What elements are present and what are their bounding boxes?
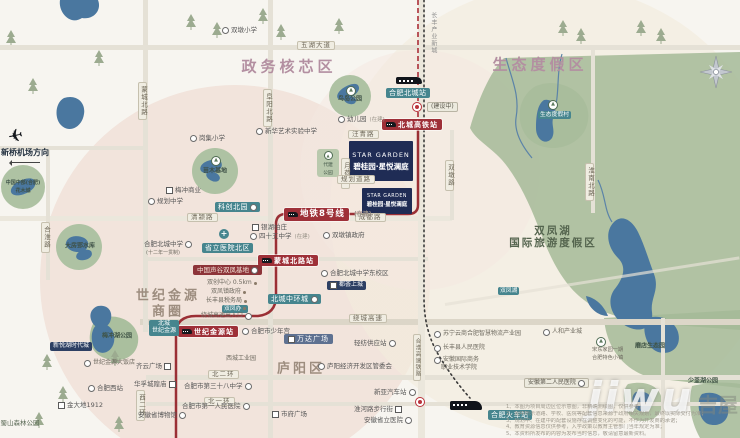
disclaimer-line-4: 4、教育资源信息仅供参考，入学政策以教育主管部门当年规定为准； <box>506 424 738 431</box>
disclaimer-line-2: 2、图中所示道路、学校、医院等配套信息来源于政府相关规划，最终以实际交付为准； <box>506 411 738 418</box>
map-canvas: STAR GARDEN 碧桂园·星悦澜庭 STAR GARDEN 碧桂园·星悦澜… <box>0 0 740 438</box>
project-south-name-cn: 碧桂园·星悦澜庭 <box>367 200 408 208</box>
circleA-label-line1-text: 中国中部(合肥) <box>6 181 41 187</box>
airport-direction: 新桥机场方向 <box>1 148 49 157</box>
poi-shuangfeng-gov-text: 双凤镇政府 <box>211 289 241 296</box>
circleA-label-line2: 花木城 <box>15 189 30 195</box>
poi-45-middle-text: 四十五中学 <box>259 233 292 240</box>
poi-xinhua-art-school-text: 新华艺术实验中学 <box>265 128 317 135</box>
project-name-en: STAR GARDEN <box>352 151 410 159</box>
metro-roundel-south <box>415 397 425 407</box>
station-shijijinyuan: 世纪金源站 <box>178 326 238 337</box>
poi-changfeng-tax-text: 长丰县税务局 <box>206 298 242 305</box>
poi-planned-school: 规划中学 <box>148 198 183 205</box>
region-shengtai: 生态度假区 <box>492 56 587 73</box>
rail-dotted-hsr <box>424 0 470 398</box>
poi-huaihe-rd-street-text: 淮河路步行街 <box>354 406 393 413</box>
road-huainan-north-text: 淮南北路 <box>586 167 593 197</box>
c-icon <box>250 204 257 211</box>
road-hehuai: 合淮路 <box>41 222 50 253</box>
poi-xicheng-industrial-text: 西城工业园 <box>226 356 256 363</box>
poi-beicheng-sjjy-line2: 世纪金源 <box>152 328 176 335</box>
poi-anhui-intl-biz-line2: 职业技术学院 <box>441 365 477 372</box>
s-icon <box>288 336 295 343</box>
poi-anhui-provincial-hospital-text: 安徽省立医院 <box>364 417 403 424</box>
region-shuangfenghu-line1-text: 双凤湖 <box>534 225 572 237</box>
poi-huaihe-rd-street: 淮河路步行街 <box>354 406 402 413</box>
road-north-2nd-ring: 北二环 <box>208 370 239 379</box>
s-icon <box>164 363 171 370</box>
poi-xicheng-industrial: 西城工业园 <box>226 356 256 363</box>
poi-beicheng-zhonghuan: 北城中环城 <box>268 294 321 304</box>
d-icon <box>243 291 246 294</box>
poi-luyang-edz-text: 庐阳经济开发区管委会 <box>327 363 392 370</box>
poi-songdong-line2-text: 合肥特色小镇 <box>592 356 623 362</box>
poi-beicheng-middle-note: (十二年一贯制) <box>146 251 180 257</box>
banner-china-sound-valley: 中国声谷双凤基地 <box>193 265 262 275</box>
poi-beicheng-middle-text: 合肥北城中学 <box>144 241 183 248</box>
status-under-construction-text: (建设中) <box>431 104 454 111</box>
station-beicheng-hsr: 北城高铁站 <box>382 119 442 130</box>
c-icon <box>243 403 250 410</box>
c-icon <box>389 340 396 347</box>
road-planned: 规划道路 <box>337 175 375 184</box>
road-huainan-north: 淮南北路 <box>585 163 594 201</box>
poi-gangji-primary-text: 岗集小学 <box>199 135 225 142</box>
s-icon <box>58 402 65 409</box>
poi-songdong-line1-text: 宋东家园一期 <box>592 348 623 354</box>
label-shuangfenghu-lake-text: 双凤湖 <box>500 288 517 295</box>
poi-yinhu-bozhuang: 银湖柏庄 <box>252 224 287 231</box>
poi-gangji-primary: 岗集小学 <box>190 135 225 142</box>
c-icon <box>242 328 249 335</box>
poi-shifu-plaza: 市府广场 <box>272 411 307 418</box>
disclaimer-line-3: 3、规划中、在建中的配套设施存在调整变化的可能，不作为开发商的承诺； <box>506 418 738 425</box>
c-icon <box>88 385 95 392</box>
poi-youth-palace: 合肥市少年宫 <box>242 328 290 335</box>
c-icon <box>185 241 192 248</box>
road-shuangdun: 双墩路 <box>445 160 454 191</box>
poi-wanda-plaza: 万达广场 <box>284 334 333 344</box>
tr-icon <box>262 258 272 263</box>
rail-hehuai-hsr-text: 合淮高速铁路 <box>414 338 420 377</box>
airport-direction-arrow <box>10 162 40 163</box>
poi-hefei-west-station-text: 合肥西站 <box>97 385 123 392</box>
poi-first-peoples-hospital: 合肥市第一人民医院 <box>182 403 250 410</box>
road-raocheng-expwy: 绕城高速 <box>349 314 387 323</box>
poi-hefei-west-station: 合肥西站 <box>88 385 123 392</box>
poi-anhui-provincial-hospital: 安徽省立医院 <box>364 417 412 424</box>
status-under-construction: (建设中) <box>427 102 458 112</box>
poi-first-peoples-hospital-text: 合肥市第一人民医院 <box>182 403 241 410</box>
metro-line8-banner: 地铁8号线 <box>284 208 349 221</box>
poi-kindergarten-status: (在建) <box>370 117 385 123</box>
tree-badge-circleD: ▲ <box>346 86 356 96</box>
poi-meichong-biz-text: 梅冲商业 <box>175 187 201 194</box>
poi-wanda-plaza-text: 万达广场 <box>297 335 329 343</box>
park-meichonghu-text: 梅冲湖公园 <box>102 334 132 341</box>
poi-jindadi-1912-text: 金大地1912 <box>67 402 103 409</box>
s-icon <box>395 406 402 413</box>
poi-changfeng-tax: 长丰县税务局 <box>206 298 247 305</box>
d-icon <box>244 300 247 303</box>
region-sjjy-line2: 商圈 <box>152 306 184 321</box>
poi-suning-logistics: 苏宁云商合肥智慧物流产业园 <box>434 331 521 338</box>
s-icon <box>252 224 259 231</box>
station-hefei-beicheng: 合肥北城站 <box>386 88 430 98</box>
poi-planned-school-text: 规划中学 <box>157 198 183 205</box>
poi-duhui-shangcheng-text: 都荟上城 <box>339 282 363 289</box>
c-icon <box>323 232 330 239</box>
park-square-daijian: ▲ 代建 公园 <box>317 149 339 177</box>
disclaimer-line-5: 5、本资料所发布的内容为发布当时信息，敬请留意最新资料。 <box>506 431 738 438</box>
project-name-cn: 碧桂园·星悦澜庭 <box>353 161 408 172</box>
c-icon <box>250 233 257 240</box>
road-mengcheng-north-text: 蒙城北路 <box>139 86 146 116</box>
poi-huafu-chenghuangmiao: 华孚城隍庙 <box>134 381 176 388</box>
region-zhengwu: 政务核芯区 <box>241 58 336 75</box>
c-icon <box>256 128 263 135</box>
poi-no38-middle-text: 合肥市第三十八中学 <box>184 383 243 390</box>
circleD-label: 鸟岛公园 <box>338 97 362 104</box>
station-beicheng-hsr-text: 北城高铁站 <box>398 121 438 129</box>
poi-anhui-museum: 安徽省博物馆 <box>138 412 186 419</box>
road-shuangdun-text: 双墩路 <box>446 164 453 187</box>
c-icon <box>251 267 258 274</box>
poi-kechuang-beiyuan: 科创北园 <box>215 202 260 212</box>
poi-anhui-museum-text: 安徽省博物馆 <box>138 412 177 419</box>
changfeng-newtown: 长丰产业新城 <box>429 12 436 54</box>
train-icon-beicheng <box>396 77 422 84</box>
airport-direction-text: 新桥机场方向 <box>1 148 49 157</box>
region-shuangfenghu-line2-text: 国际旅游度假区 <box>509 237 597 249</box>
poi-changfeng-hospital-text: 长丰县人民医院 <box>443 345 485 352</box>
c-icon <box>245 383 252 390</box>
disclaimer-line-1: 1、本图为项目周边区位示意图，非精确测绘图，仅供参考； <box>506 404 738 411</box>
poi-provincial-hospital-north: 省立医院北区 <box>202 243 253 253</box>
park-dashushan: 大蜀山森林公园 <box>0 420 40 427</box>
poi-shuangdun-primary-text: 双墩小学 <box>231 27 257 34</box>
c-icon <box>434 345 441 352</box>
metro-line8-banner-text: 地铁8号线 <box>300 210 345 220</box>
s-icon <box>169 381 176 388</box>
poi-renhe-industry: 人和产业城 <box>543 329 582 336</box>
poi-xinya-bus-station: 新亚汽车站 <box>374 389 416 396</box>
park-modian-eco-text: 磨店生态园 <box>635 344 665 351</box>
c-icon <box>190 135 197 142</box>
c-icon <box>318 363 325 370</box>
rail-hehuai-hsr: 合淮高速铁路 <box>413 334 421 381</box>
poi-kindergarten: 幼儿园(在建) <box>338 116 385 123</box>
poi-qiyun-plaza: 齐云广场 <box>136 363 171 370</box>
d-icon <box>243 307 246 310</box>
poi-xinhua-art-school: 新华艺术实验中学 <box>256 128 317 135</box>
road-mengcheng-north: 蒙城北路 <box>138 82 147 120</box>
poi-anhui-intl-biz-line1-text: 安徽国际商务 <box>443 357 479 364</box>
s-icon <box>272 411 279 418</box>
poi-anhui-2nd-hospital: 安徽第二人民医院 <box>524 378 589 388</box>
poi-qingfang-station: 轻纺供应站 <box>354 340 396 347</box>
park-modian-eco: 磨店生态园 <box>635 344 665 351</box>
region-shuangfenghu-line1: 双凤湖 <box>534 225 572 237</box>
road-wangqing: 汪青路 <box>348 130 379 139</box>
park-meichonghu: 梅冲湖公园 <box>102 334 132 341</box>
poi-beicheng-zhonghuan-text: 北城中环城 <box>271 295 309 303</box>
station-hefei-beicheng-text: 合肥北城站 <box>389 89 427 97</box>
label-shuangfenghu-lake: 双凤湖 <box>498 287 519 295</box>
tr-icon <box>288 212 298 217</box>
c-icon <box>148 198 155 205</box>
station-mengcheng-north-rd-text: 蒙城北路站 <box>274 257 314 265</box>
poi-anhui-intl-biz-line1: 安徽国际商务 <box>434 357 479 364</box>
compass-icon <box>698 54 734 90</box>
region-zhengwu-text: 政务核芯区 <box>241 58 336 75</box>
poi-expwy-exit: 绕城高速出入口 <box>201 313 252 320</box>
region-shuangfenghu-line2: 国际旅游度假区 <box>509 237 597 249</box>
c-icon <box>543 329 550 336</box>
poi-shuangdun-gov: 双墩镇政府 <box>323 232 365 239</box>
poi-suning-logistics-text: 苏宁云商合肥智慧物流产业园 <box>443 331 521 338</box>
poi-anhui-2nd-hospital-text: 安徽第二人民医院 <box>528 380 576 387</box>
poi-songdong-line1: 宋东家园一期 <box>592 348 623 354</box>
park-square-label-1: 代建 <box>323 161 333 168</box>
c-icon <box>434 331 441 338</box>
c-icon <box>409 389 416 396</box>
c-icon <box>434 357 441 364</box>
banner-china-sound-valley-text: 中国声谷双凤基地 <box>197 267 249 274</box>
park-square-label-2: 公园 <box>323 169 333 176</box>
poi-xinyuehu-times: 新悦湖时代城 <box>50 342 92 351</box>
poi-shuangchuang-center: 双创中心 0.5km <box>207 280 257 287</box>
poi-kechuang-beiyuan-text: 科创北园 <box>218 203 248 211</box>
metro-line8-status-text: (在建) <box>354 212 372 219</box>
poi-shuangdun-primary: 双墩小学 <box>222 27 257 34</box>
poi-no38-middle: 合肥市第三十八中学 <box>184 383 252 390</box>
poi-yinhu-bozhuang-text: 银湖柏庄 <box>261 224 287 231</box>
c-icon <box>245 313 252 320</box>
poi-shuangdun-gov-text: 双墩镇政府 <box>332 232 365 239</box>
label-eco-resort-village-text: 生态度假村 <box>540 112 569 119</box>
poi-beicheng-middle-east: 合肥北城中学东校区 <box>321 270 389 277</box>
poi-renhe-industry-text: 人和产业城 <box>552 329 582 336</box>
label-eco-resort-village: 生态度假村 <box>538 111 571 119</box>
region-shengtai-text: 生态度假区 <box>492 56 587 73</box>
poi-songdong-line2: 合肥特色小镇 <box>592 356 623 362</box>
poi-sjjy-hotel: 世纪金源大饭店 <box>84 360 135 367</box>
region-sjjy-line1-text: 世纪金源 <box>136 290 200 305</box>
tree-badge-resort: ▲ <box>548 100 558 110</box>
changfeng-newtown-text: 长丰产业新城 <box>429 12 436 54</box>
road-qingying: 清颍路 <box>187 213 218 222</box>
poi-beicheng-middle-note-text: (十二年一贯制) <box>146 251 180 257</box>
road-fuyang-north: 阜阳北路 <box>263 89 272 127</box>
poi-huafu-chenghuangmiao-text: 华孚城隍庙 <box>134 381 167 388</box>
circleC-label: 苗木基地 <box>203 169 227 176</box>
tr-icon <box>182 329 192 334</box>
region-sjjy-line2-text: 商圈 <box>152 306 184 321</box>
c-icon <box>84 360 91 367</box>
c-icon <box>405 417 412 424</box>
poi-beicheng-middle: 合肥北城中学 <box>144 241 192 248</box>
road-north-2nd-ring-text: 北二环 <box>212 371 235 378</box>
c-icon <box>222 27 229 34</box>
circleC-label-text: 苗木基地 <box>203 169 227 176</box>
poi-qingfang-station-text: 轻纺供应站 <box>354 340 387 347</box>
poi-45-middle: 四十五中学(在建) <box>250 233 310 240</box>
road-planned-text: 规划道路 <box>341 176 371 183</box>
poi-shuangchuang-center-text: 双创中心 0.5km <box>207 280 252 287</box>
tr-icon <box>386 122 396 127</box>
c-icon <box>321 270 328 277</box>
park-dashushan-text: 大蜀山森林公园 <box>0 420 40 427</box>
station-shijijinyuan-text: 世纪金源站 <box>194 328 234 336</box>
poi-luyang-edz: 庐阳经济开发区管委会 <box>318 363 392 370</box>
road-fuyang-north-text: 阜阳北路 <box>264 93 271 123</box>
circleA-label-line1: 中国中部(合肥) <box>6 181 41 187</box>
circleB-label: 大房郢水库 <box>65 244 95 251</box>
disclaimer-block: 1、本图为项目周边区位示意图，非精确测绘图，仅供参考； 2、图中所示道路、学校、… <box>506 404 738 438</box>
tree-badge-circleC: ▲ <box>211 156 221 166</box>
road-qingying-text: 清颍路 <box>191 214 214 221</box>
poi-anhui-intl-biz-line2-text: 职业技术学院 <box>441 365 477 372</box>
tree-badge-songdong: ▲ <box>596 337 606 347</box>
poi-beicheng-middle-east-text: 合肥北城中学东校区 <box>330 270 389 277</box>
road-hehuai-text: 合淮路 <box>42 226 49 249</box>
c-icon <box>311 296 318 303</box>
circleD-label-text: 鸟岛公园 <box>338 97 362 104</box>
poi-meichong-biz: 梅冲商业 <box>166 187 201 194</box>
metro-roundel-north <box>412 102 422 112</box>
poi-duhui-shangcheng: 都荟上城 <box>327 281 366 290</box>
road-wuhu-avenue: 五湖大道 <box>297 41 335 50</box>
poi-shifu-plaza-text: 市府广场 <box>281 411 307 418</box>
region-sjjy-line1: 世纪金源 <box>136 290 200 305</box>
poi-qiyun-plaza-text: 齐云广场 <box>136 363 162 370</box>
poi-expwy-exit-text: 绕城高速出入口 <box>201 313 243 320</box>
poi-jindadi-1912: 金大地1912 <box>58 402 103 409</box>
poi-sjjy-hotel-text: 世纪金源大饭店 <box>93 360 135 367</box>
poi-beicheng-sjjy: 北城世纪金源 <box>149 320 179 336</box>
road-wangqing-text: 汪青路 <box>352 131 375 138</box>
c-icon <box>338 116 345 123</box>
circleA-label-line2-text: 花木城 <box>15 189 30 195</box>
road-wuhu-avenue-text: 五湖大道 <box>301 42 331 49</box>
train-icon-hefei-station <box>450 401 482 410</box>
project-south-name-en: STAR GARDEN <box>367 194 407 199</box>
poi-changfeng-hospital: 长丰县人民医院 <box>434 345 485 352</box>
poi-xinyuehu-times-text: 新悦湖时代城 <box>53 343 89 350</box>
poi-shuangfeng-gov: 双凤镇政府 <box>211 289 246 296</box>
road-raocheng-expwy-text: 绕城高速 <box>353 315 383 322</box>
metro-line8-status: (在建) <box>354 212 372 219</box>
poi-45-middle-status: (在建) <box>295 234 310 240</box>
c-icon <box>578 380 585 387</box>
c-icon <box>179 412 186 419</box>
tree-icon: ▲ <box>324 151 333 160</box>
s-icon <box>330 282 337 289</box>
station-mengcheng-north-rd: 蒙城北路站 <box>258 255 318 266</box>
poi-xinya-bus-station-text: 新亚汽车站 <box>374 389 407 396</box>
d-icon <box>254 282 257 285</box>
icon-hospital-cross: + <box>219 229 229 239</box>
s-icon <box>166 187 173 194</box>
poi-provincial-hospital-north-text: 省立医院北区 <box>205 244 250 252</box>
poi-kindergarten-text: 幼儿园 <box>347 116 367 123</box>
circleB-label-text: 大房郢水库 <box>65 244 95 251</box>
